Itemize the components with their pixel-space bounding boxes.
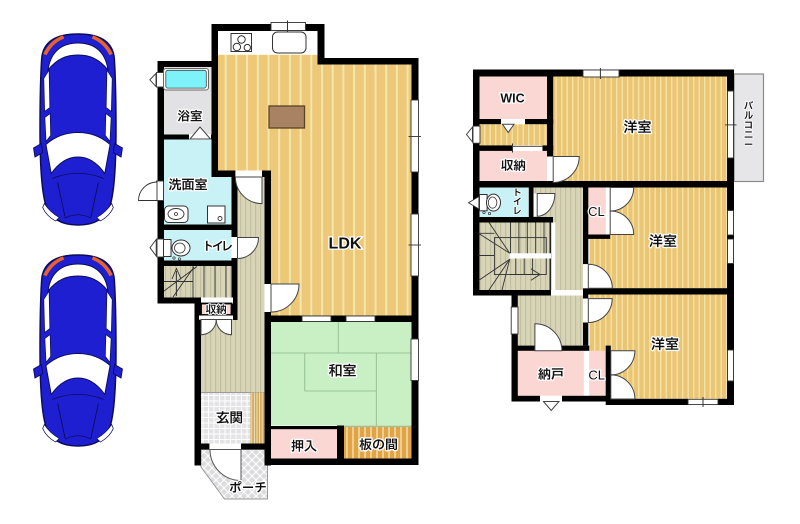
svg-text:LDK: LDK <box>329 236 362 253</box>
svg-text:CL: CL <box>588 204 605 219</box>
svg-text:WIC: WIC <box>500 92 524 106</box>
svg-text:CL: CL <box>588 368 605 383</box>
